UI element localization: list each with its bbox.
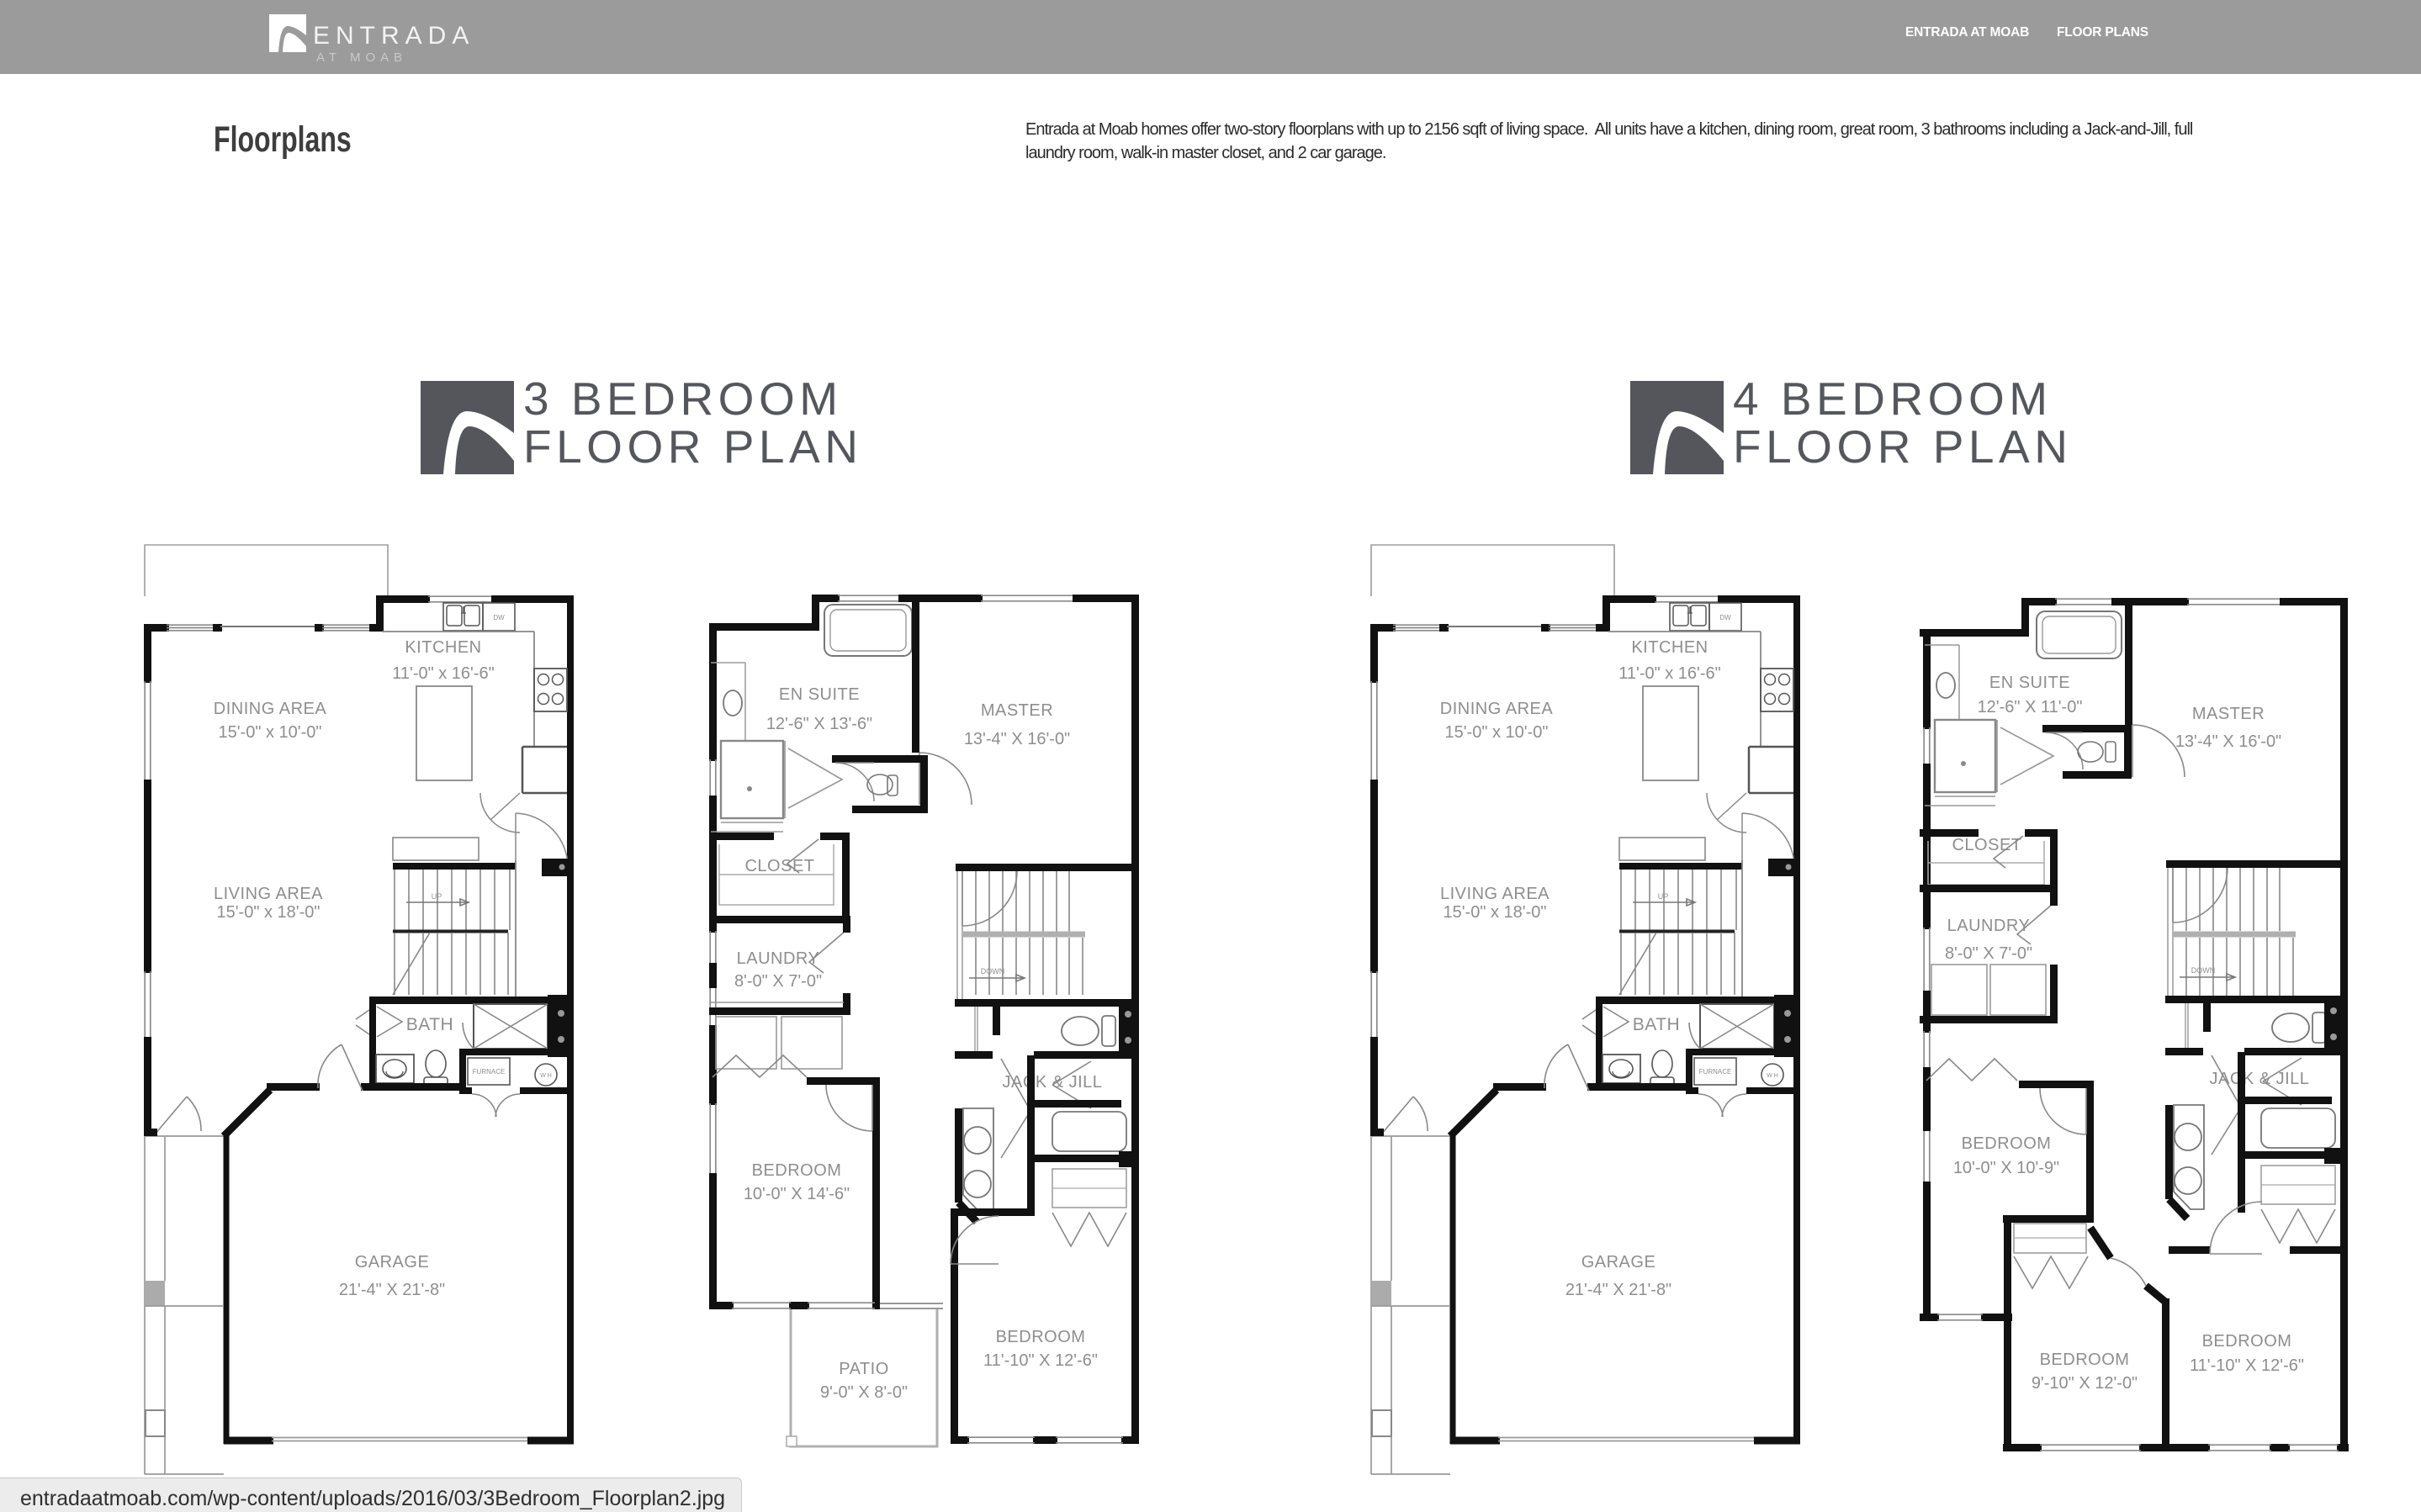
svg-text:LAUNDRY: LAUNDRY: [1947, 917, 2031, 935]
svg-text:12'-6" X 11'-0": 12'-6" X 11'-0": [1978, 698, 2083, 716]
svg-text:PATIO: PATIO: [839, 1360, 889, 1378]
svg-text:11'-10" X 12'-6": 11'-10" X 12'-6": [983, 1351, 1098, 1370]
svg-text:12'-6" X 13'-6": 12'-6" X 13'-6": [766, 715, 872, 733]
svg-text:13'-4" X 16'-0": 13'-4" X 16'-0": [2175, 732, 2281, 751]
svg-text:15'-0" x 18'-0": 15'-0" x 18'-0": [216, 903, 320, 922]
svg-text:GARAGE: GARAGE: [355, 1253, 430, 1271]
svg-text:BATH: BATH: [406, 1015, 453, 1034]
svg-text:10'-0" X 14'-6": 10'-0" X 14'-6": [744, 1185, 850, 1203]
svg-text:FURNACE: FURNACE: [473, 1068, 506, 1076]
svg-text:EN SUITE: EN SUITE: [1989, 674, 2070, 692]
svg-text:LAUNDRY: LAUNDRY: [737, 949, 820, 968]
svg-text:MASTER: MASTER: [981, 701, 1053, 720]
svg-text:10'-0" X 10'-9": 10'-0" X 10'-9": [1953, 1159, 2059, 1177]
svg-text:13'-4" X 16'-0": 13'-4" X 16'-0": [964, 730, 1070, 748]
svg-text:BEDROOM: BEDROOM: [996, 1328, 1086, 1346]
svg-text:8'-0" X 7'-0": 8'-0" X 7'-0": [1945, 944, 2032, 963]
svg-text:15'-0" x 10'-0": 15'-0" x 10'-0": [218, 723, 321, 742]
svg-text:9'-0" X 8'-0": 9'-0" X 8'-0": [820, 1383, 908, 1402]
svg-text:BEDROOM: BEDROOM: [1962, 1134, 2052, 1153]
svg-text:DOWN: DOWN: [2191, 966, 2216, 975]
svg-text:11'-10" X 12'-6": 11'-10" X 12'-6": [2190, 1356, 2304, 1375]
svg-text:BEDROOM: BEDROOM: [2040, 1351, 2130, 1369]
svg-text:UP: UP: [432, 892, 442, 901]
svg-text:11'-0" x 16'-6": 11'-0" x 16'-6": [392, 664, 495, 683]
svg-text:LIVING AREA: LIVING AREA: [214, 885, 323, 903]
svg-text:9'-10" X 12'-0": 9'-10" X 12'-0": [2032, 1374, 2138, 1393]
svg-text:BEDROOM: BEDROOM: [752, 1161, 842, 1180]
svg-text:21'-4" X 21'-8": 21'-4" X 21'-8": [339, 1281, 445, 1299]
svg-text:DOWN: DOWN: [981, 967, 1005, 975]
svg-text:CLOSET: CLOSET: [744, 857, 814, 875]
svg-text:MASTER: MASTER: [2192, 705, 2265, 723]
svg-text:KITCHEN: KITCHEN: [405, 638, 481, 657]
svg-text:DINING AREA: DINING AREA: [214, 700, 327, 718]
svg-text:DW: DW: [493, 614, 505, 621]
svg-text:BEDROOM: BEDROOM: [2202, 1332, 2292, 1351]
svg-text:EN SUITE: EN SUITE: [779, 685, 860, 704]
svg-text:W H: W H: [540, 1073, 552, 1079]
svg-text:8'-0" X 7'-0": 8'-0" X 7'-0": [734, 972, 822, 991]
